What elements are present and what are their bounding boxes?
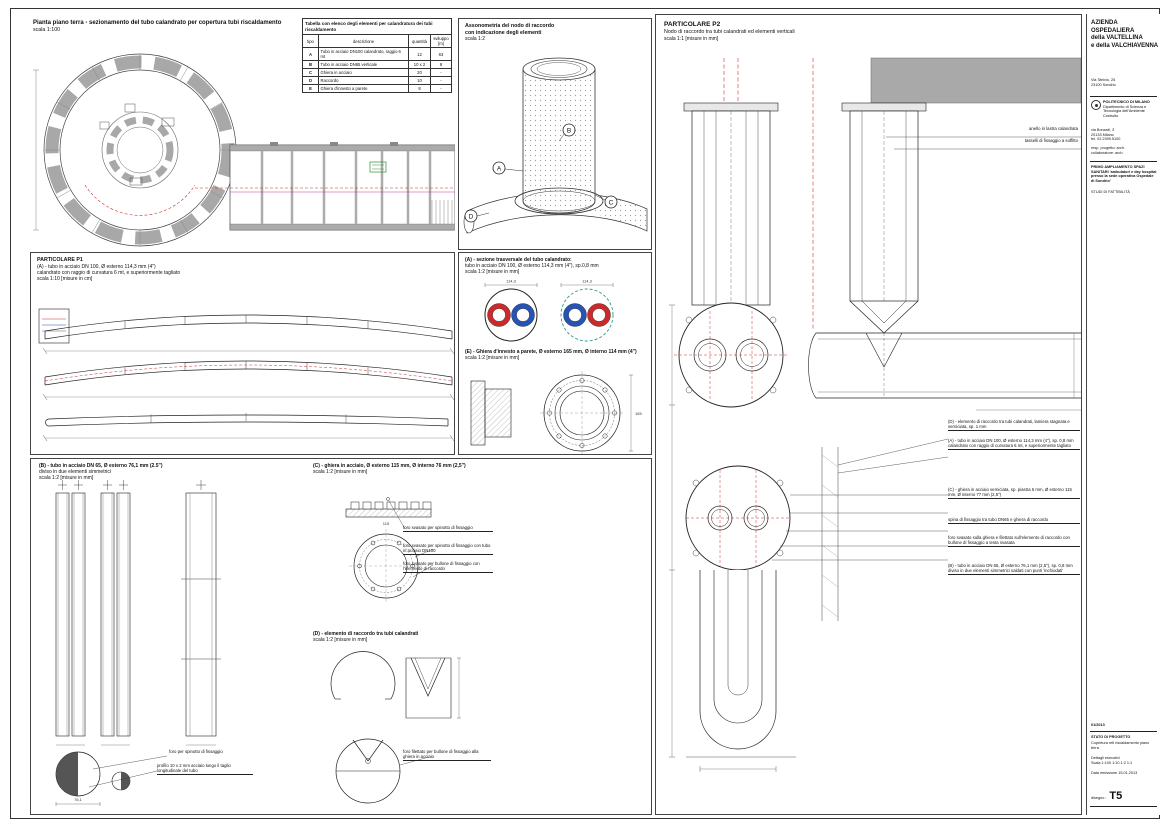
org-name: AZIENDA OSPEDALIERA della VALTELLINA e d…	[1091, 20, 1160, 50]
secD-title: (D) - elemento di raccordo tra tubi cala…	[313, 631, 418, 643]
p2-note-top-1: anello in lastra calandrata	[948, 126, 1078, 131]
svg-text:114,3: 114,3	[582, 279, 592, 284]
svg-text:C: C	[609, 200, 614, 207]
secC-note-1: foro svasato per spinotto di fissaggio	[403, 525, 493, 532]
section-a-panel: (A) - sezione trasversale del tubo calan…	[458, 252, 652, 455]
cell: 8	[431, 61, 452, 69]
cell: -	[431, 85, 452, 93]
issue-date: Data emissione 15.01.2013	[1091, 771, 1137, 776]
polimi-logo-icon	[1091, 100, 1101, 110]
project-phase: STUDI DI FATTIBILITÀ	[1091, 190, 1130, 195]
cell: D	[303, 77, 319, 85]
table-title: Tabella con elenco degli elementi per ca…	[302, 18, 452, 34]
divider	[1090, 731, 1157, 732]
title-block: AZIENDA OSPEDALIERA della VALTELLINA e d…	[1086, 14, 1160, 815]
col-sviluppo: sviluppo [m]	[431, 35, 452, 48]
p2-drawing	[656, 15, 1081, 814]
secB-title: (B) - tubo in acciaio DN 65, Ø esterno 7…	[39, 463, 163, 482]
sheet-subject: Copertura reti riscaldamento piano terra	[1091, 741, 1157, 750]
particolare-p2-panel: PARTICOLARE P2 Nodo di raccordo tra tubi…	[655, 14, 1082, 815]
drawing-number: T5	[1109, 790, 1122, 802]
p2-annotation-5: foro svasato sulla ghiera e filettato su…	[948, 535, 1080, 547]
col-descrizione: descrizione	[319, 35, 409, 48]
p2-annotation-4: spina di fissaggio tra tubo DN65 e ghier…	[948, 517, 1080, 524]
divider	[1090, 806, 1157, 807]
sections-bcd-panel: 76,1	[30, 458, 652, 815]
university-logo-row: POLITECNICO DI MILANO Dipartimento di Sc…	[1091, 100, 1160, 118]
cell: 20	[409, 69, 431, 77]
table-row: A Tubo in acciaio DN100 calandrato, ragg…	[303, 48, 452, 61]
secC-note-2: foro svasato per spinotto di fissaggio c…	[403, 543, 493, 555]
svg-text:165: 165	[635, 411, 642, 416]
axonometry-drawing: A B C D	[459, 19, 651, 249]
svg-text:A: A	[497, 166, 502, 173]
cell: 12	[409, 48, 431, 61]
svg-text:76,1: 76,1	[74, 797, 83, 802]
university-address: via Bonardi, 3 20133 Milano tel. 02.2399…	[1091, 128, 1120, 142]
sheet-scales: Scala 1:100 1:10 1:2 1:1	[1091, 761, 1157, 766]
axonometry-panel: Assonometria del nodo di raccordo con in…	[458, 18, 652, 250]
drawing-number-row: disegno : T5	[1091, 790, 1122, 802]
cell: E	[303, 85, 319, 93]
sheet-detail: Dettagli esecutivi	[1091, 756, 1120, 761]
p2-scale: scala 1:1 [misure in mm]	[664, 36, 795, 42]
secB-note-1: foro per spinotto di fissaggio	[169, 749, 253, 754]
p2-title: PARTICOLARE P2	[664, 21, 795, 29]
cell: 10 x 2	[409, 61, 431, 69]
cell: -	[431, 77, 452, 85]
stato-progetto: STATO DI PROGETTO	[1091, 735, 1130, 740]
p2-note-top-2: tasselli di fissaggio a soffitto	[948, 138, 1078, 143]
cell: Raccordo	[319, 77, 409, 85]
sheet-code: 01/2013	[1091, 723, 1105, 728]
divider	[1090, 96, 1157, 97]
plan-scale-text: scala 1:100	[33, 27, 281, 34]
p2-title-block: PARTICOLARE P2 Nodo di raccordo tra tubi…	[664, 21, 795, 42]
elements-table-panel: Tabella con elenco degli elementi per ca…	[302, 18, 452, 93]
plan-title-text: Pianta piano terra - sezionamento del tu…	[33, 19, 281, 27]
cell: Tubo in acciaio DN100 calandrato, raggio…	[319, 48, 409, 61]
design-team: resp. progetto: arch. collaboratore: arc…	[1091, 146, 1125, 155]
secB-note-2: profilo 10 x 2 mm acciaio lungo il tagli…	[157, 763, 253, 775]
cell: -	[431, 69, 452, 77]
cell: C	[303, 69, 319, 77]
table-row: B Tubo in acciaio DN65 verticale 10 x 2 …	[303, 61, 452, 69]
p2-subtitle: Nodo di raccordo tra tubi calandrati ed …	[664, 29, 795, 36]
drawing-number-label: disegno :	[1091, 796, 1106, 801]
table-header-row: tipo descrizione quantità sviluppo [m]	[303, 35, 452, 48]
floor-plan-title: Pianta piano terra - sezionamento del tu…	[33, 19, 281, 34]
cell: Tubo in acciaio DN65 verticale	[319, 61, 409, 69]
secC-note-3: foro svasato per bullone di fissaggio co…	[403, 561, 493, 573]
col-quantita: quantità	[409, 35, 431, 48]
col-tipo: tipo	[303, 35, 319, 48]
section-a-drawing: 114,3 114,3	[459, 253, 651, 454]
org-address: Via Stelvio, 25 23100 Sondrio	[1091, 78, 1116, 87]
cell: A	[303, 48, 319, 61]
particolare-p1-panel: PARTICOLARE P1 (A) - tubo in acciaio DN …	[30, 252, 455, 455]
divider	[1090, 161, 1157, 162]
secC-title: (C) - ghiera in acciaio, Ø esterno 115 m…	[313, 463, 466, 475]
table-row: E Ghiera d'innesto a parete 8 -	[303, 85, 452, 93]
p2-annotation-1: (D) - elemento di raccordo tra tubi cala…	[948, 419, 1080, 431]
svg-text:B: B	[567, 128, 571, 135]
cell: B	[303, 61, 319, 69]
svg-text:114,3: 114,3	[506, 279, 516, 284]
p1-drawing	[31, 253, 454, 454]
cell: 8	[409, 85, 431, 93]
elements-table: tipo descrizione quantità sviluppo [m] A…	[302, 34, 452, 93]
secD-note: foro filettato per bullone di fissaggio …	[403, 749, 491, 761]
cell: Ghiera in acciaio	[319, 69, 409, 77]
drawing-sheet: Pianta piano terra - sezionamento del tu…	[0, 0, 1170, 827]
cell: 10	[409, 77, 431, 85]
p2-annotation-3: (C) - ghiera in acciaio verniciata, sp. …	[948, 487, 1080, 499]
table-row: C Ghiera in acciaio 20 -	[303, 69, 452, 77]
cell: 63	[431, 48, 452, 61]
cell: Ghiera d'innesto a parete	[319, 85, 409, 93]
p2-annotation-6: (B) - tubo in acciaio DN 65, Ø esterno 7…	[948, 563, 1080, 575]
table-row: D Raccordo 10 -	[303, 77, 452, 85]
project-title: PRIMO AMPLIAMENTO SPAZI SANITARI 'ambula…	[1091, 165, 1157, 183]
svg-text:115: 115	[383, 521, 390, 526]
p2-annotation-2: (A) - tubo in acciaio DN 100, Ø esterno …	[948, 438, 1080, 450]
svg-text:D: D	[469, 214, 474, 221]
